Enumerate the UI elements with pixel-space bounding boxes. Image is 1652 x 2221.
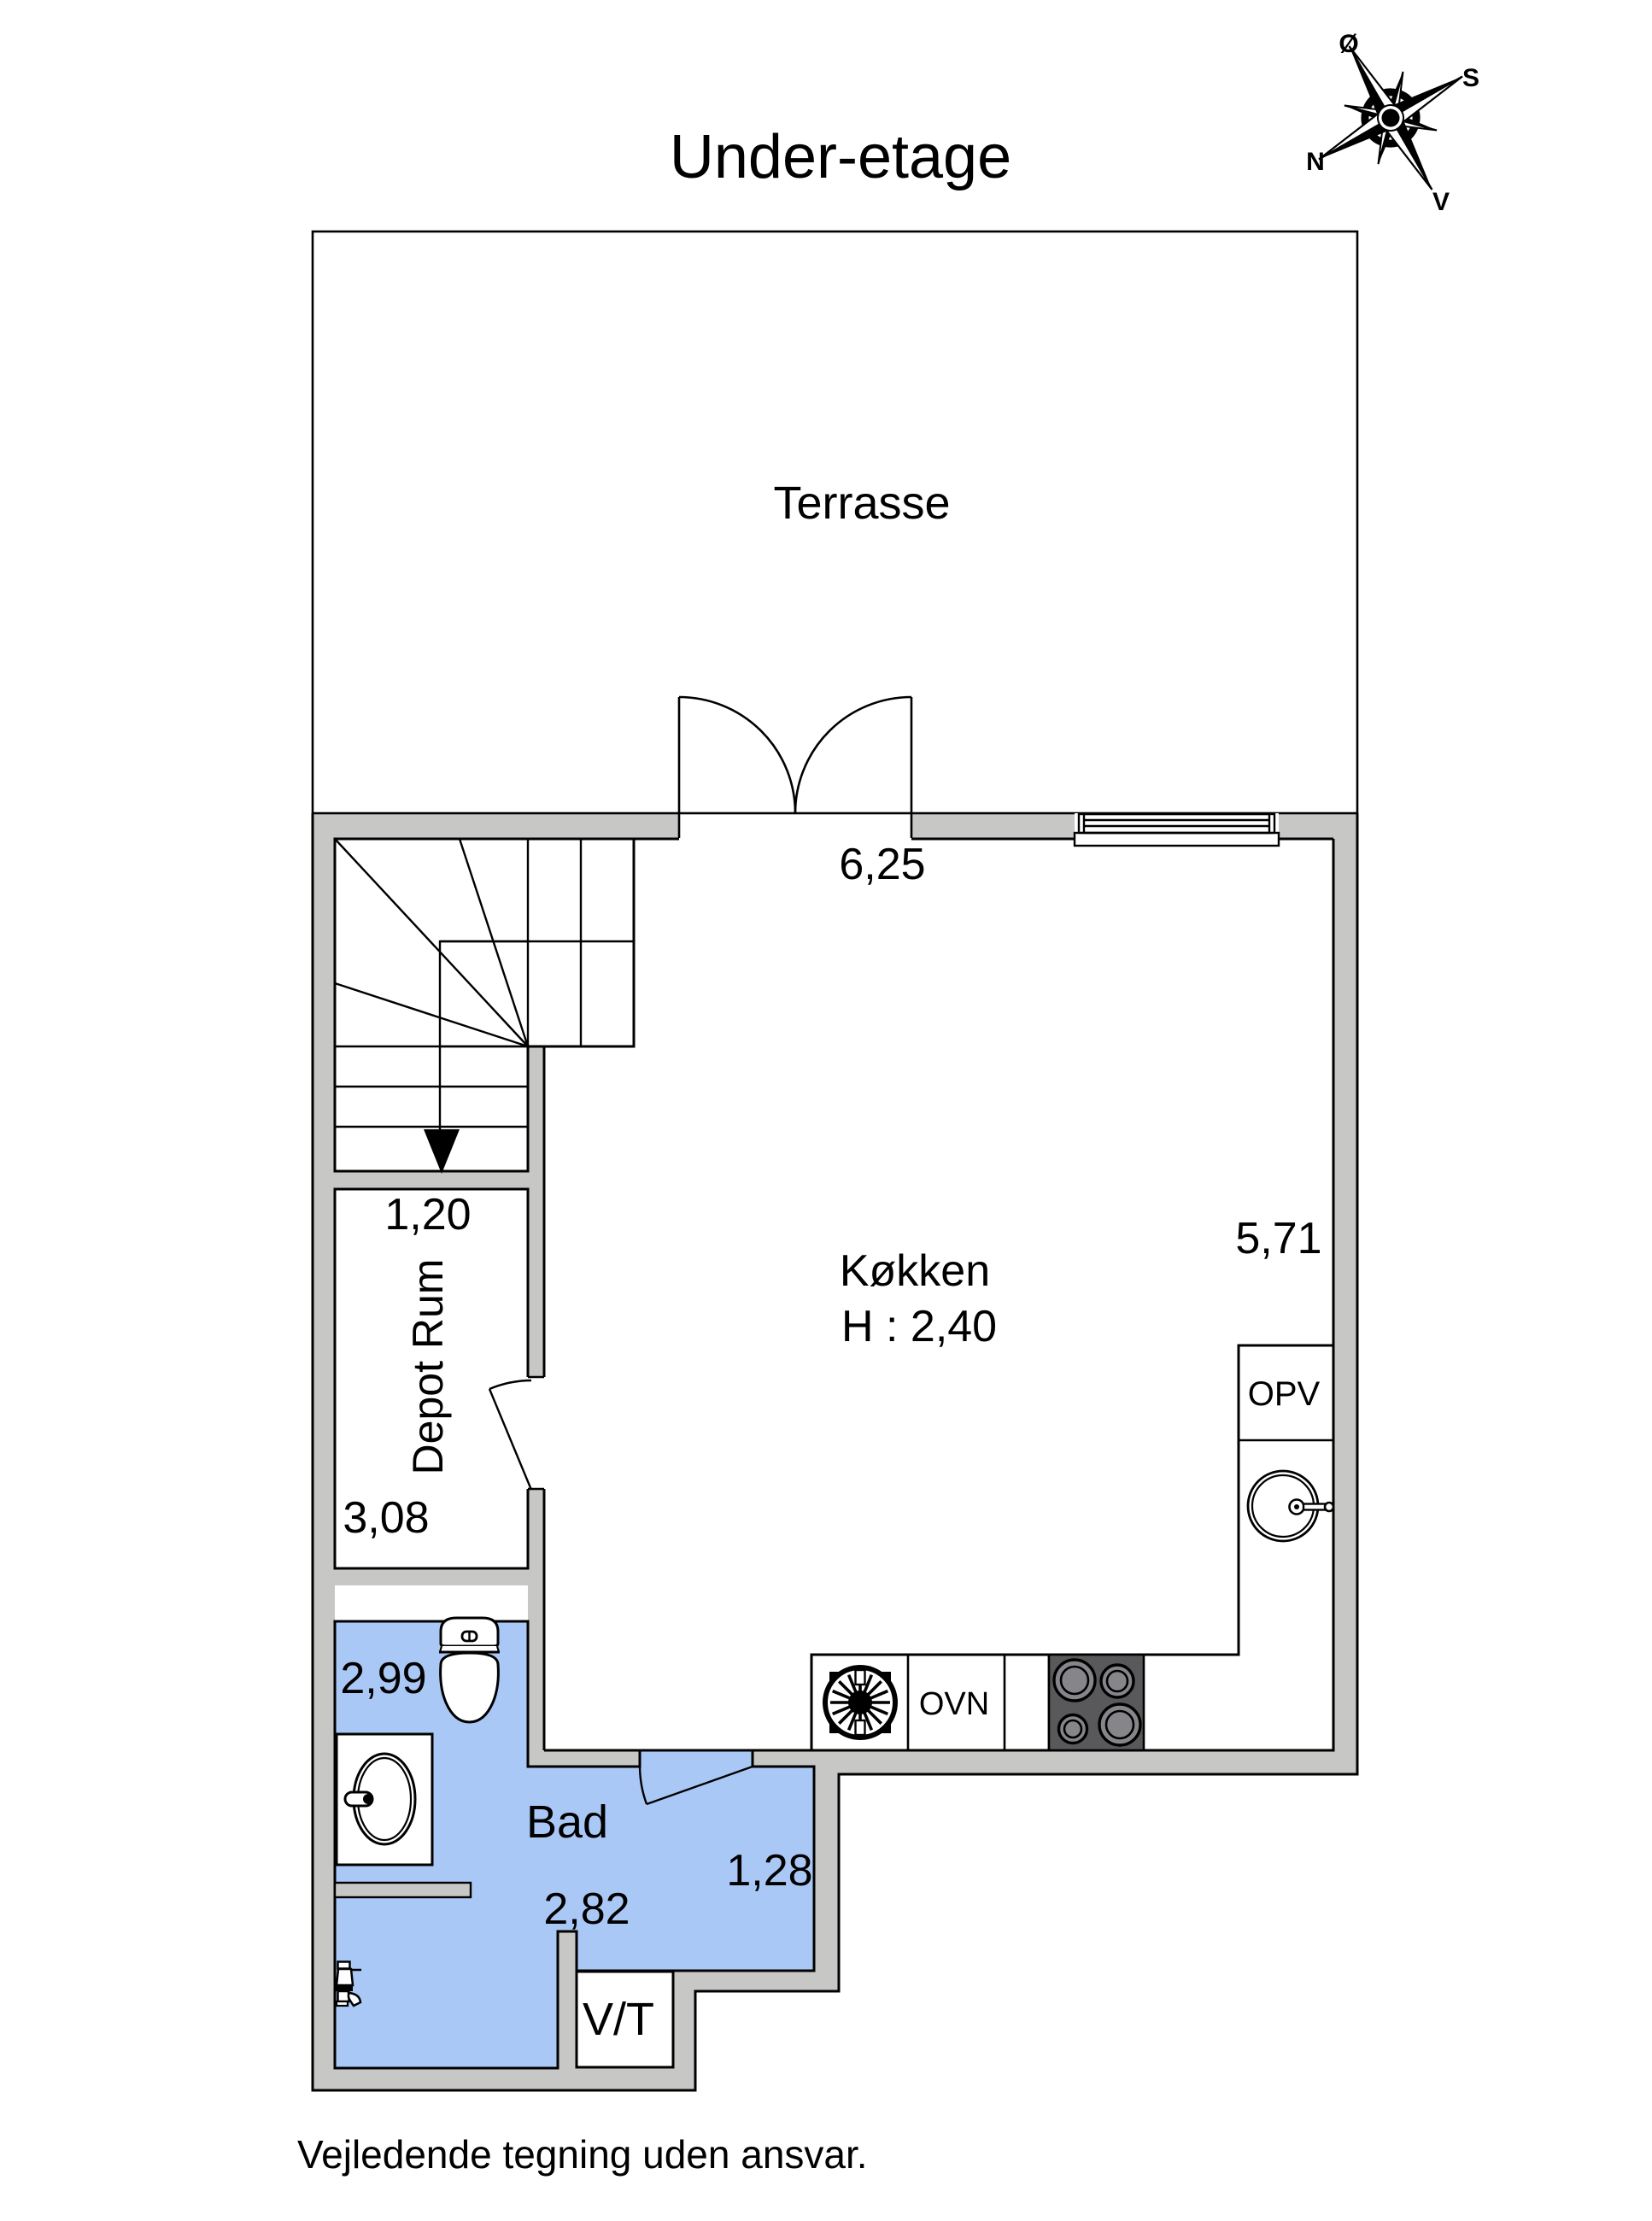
svg-text:N: N (1306, 148, 1325, 176)
svg-text:Bad: Bad (526, 1796, 608, 1848)
svg-text:OPV: OPV (1248, 1375, 1321, 1413)
svg-text:V: V (1432, 188, 1450, 216)
svg-text:1,28: 1,28 (726, 1846, 812, 1896)
svg-text:1,20: 1,20 (384, 1190, 471, 1239)
svg-text:3,08: 3,08 (343, 1493, 429, 1543)
svg-text:5,71: 5,71 (1235, 1214, 1321, 1263)
svg-text:V/T: V/T (583, 1994, 654, 2045)
svg-text:Depot Rum: Depot Rum (404, 1259, 452, 1475)
svg-text:Ø: Ø (1339, 30, 1358, 58)
svg-text:S: S (1462, 64, 1479, 92)
svg-text:6,25: 6,25 (839, 840, 925, 889)
svg-text:Terrasse: Terrasse (773, 478, 950, 529)
svg-text:Køkken: Køkken (840, 1246, 990, 1296)
svg-text:2,82: 2,82 (543, 1884, 630, 1934)
svg-text:2,99: 2,99 (340, 1654, 426, 1703)
svg-text:OVN: OVN (919, 1686, 989, 1722)
svg-text:Under-etage: Under-etage (670, 123, 1011, 191)
svg-text:Vejledende tegning uden ansvar: Vejledende tegning uden ansvar. (297, 2132, 868, 2177)
svg-text:H : 2,40: H : 2,40 (841, 1302, 997, 1351)
